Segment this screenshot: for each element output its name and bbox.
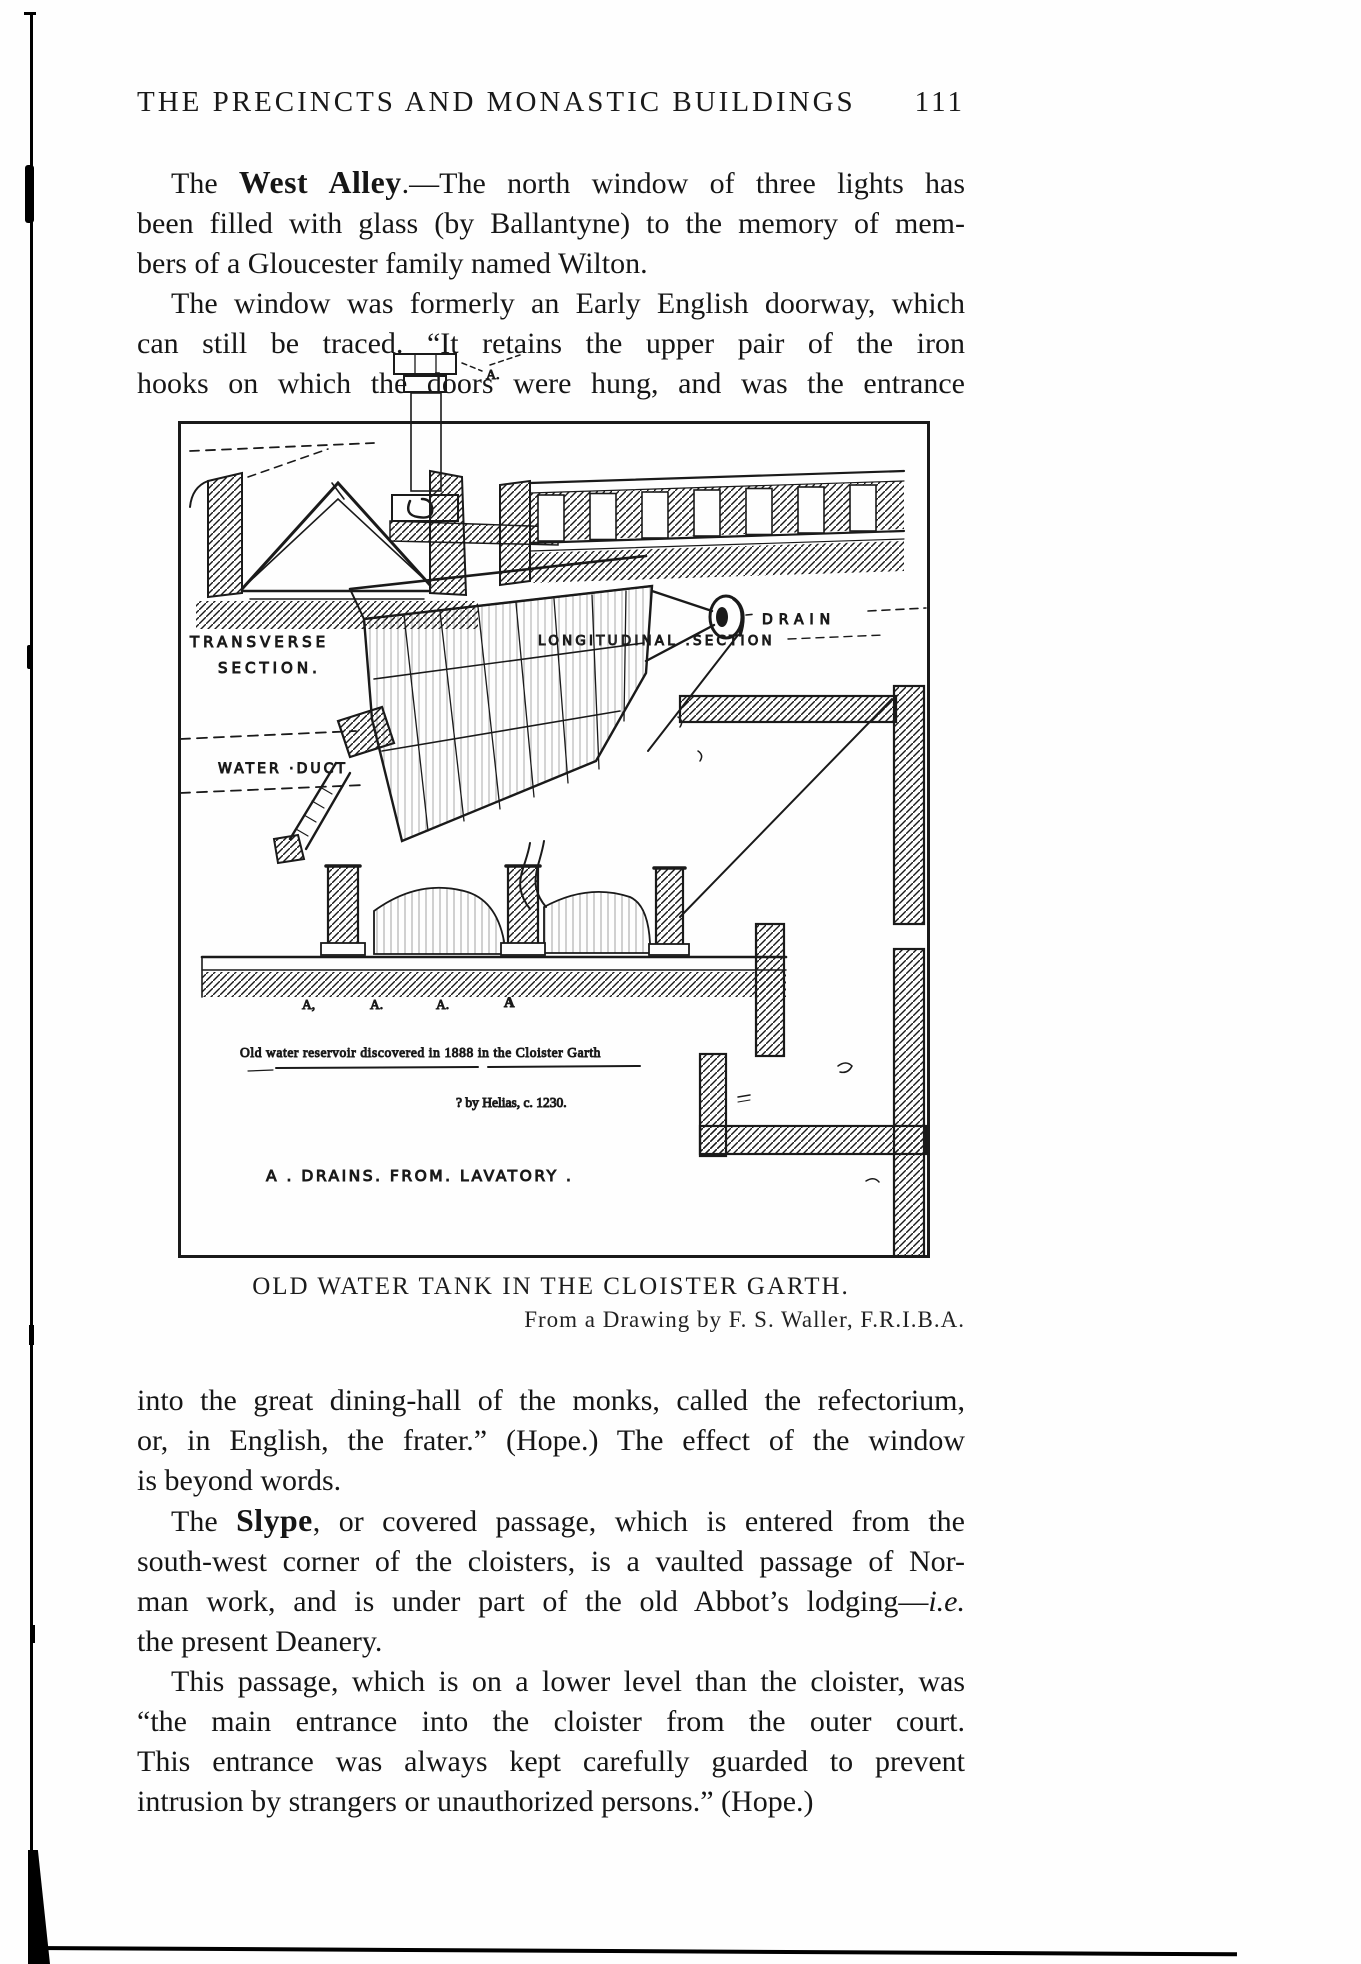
text-line: the present Deanery. xyxy=(137,1622,965,1662)
text-line: into the great dining-hall of the monks,… xyxy=(137,1381,965,1421)
text-line: south-west corner of the cloisters, is a… xyxy=(137,1542,965,1582)
text-segment: bers of a Gloucester family named Wilton… xyxy=(137,247,648,280)
label-drain: DRAIN xyxy=(762,612,836,628)
label-transverse: TRANSVERSE xyxy=(189,633,329,651)
figure-old-water-tank: TRANSVERSE SECTION. A. xyxy=(178,421,930,1258)
text-segment: the present Deanery. xyxy=(137,1625,382,1658)
scan-spine-line xyxy=(30,14,33,1864)
text-segment: .—The north window of three lights has xyxy=(402,167,965,200)
text-segment: man work, and is under part of the old A… xyxy=(137,1585,928,1618)
scan-page-edge xyxy=(32,1946,1237,1956)
text-line: The Slype, or covered passage, which is … xyxy=(137,1501,965,1542)
text-line: intrusion by strangers or unauthorized p… xyxy=(137,1782,965,1822)
text-segment: The window was formerly an Early English… xyxy=(171,287,965,320)
text-segment: “the main entrance into the cloister fro… xyxy=(137,1705,965,1738)
paragraph: This passage, which is on a lower level … xyxy=(137,1662,965,1822)
text-segment: This entrance was always kept carefully … xyxy=(137,1745,965,1778)
label-transverse-2: SECTION. xyxy=(218,659,321,677)
text-line: man work, and is under part of the old A… xyxy=(137,1582,965,1622)
text-segment: intrusion by strangers or unauthorized p… xyxy=(137,1785,814,1818)
scan-mark xyxy=(29,1325,34,1345)
inscription-drains-lavatory: A . DRAINS. FROM. LAVATORY . xyxy=(266,1167,573,1185)
scan-mark xyxy=(25,165,34,223)
scan-mark xyxy=(24,12,36,15)
scan-mark xyxy=(30,1625,35,1643)
text-segment: into the great dining-hall of the monks,… xyxy=(137,1384,965,1417)
text-line: or, in English, the frater.” (Hope.) The… xyxy=(137,1421,965,1461)
text-segment: south-west corner of the cloisters, is a… xyxy=(137,1545,965,1578)
marker-a-2: A. xyxy=(370,997,383,1012)
text-line: The West Alley.—The north window of thre… xyxy=(137,163,965,204)
marker-a-4: A xyxy=(504,995,515,1011)
text-line: This entrance was always kept carefully … xyxy=(137,1742,965,1782)
paragraph: The West Alley.—The north window of thre… xyxy=(137,163,965,284)
figure-caption-block: OLD WATER TANK IN THE CLOISTER GARTH. Fr… xyxy=(137,1272,965,1335)
book-page: THE PRECINCTS AND MONASTIC BUILDINGS 111… xyxy=(0,0,1361,1964)
bold-term: Slype xyxy=(236,1503,313,1538)
paragraph: into the great dining-hall of the monks,… xyxy=(137,1381,965,1501)
inscription-reservoir: Old water reservoir discovered in 1888 i… xyxy=(240,1045,601,1060)
scan-mark xyxy=(27,645,32,669)
text-segment: been filled with glass (by Ballantyne) t… xyxy=(137,207,965,240)
text-line: “the main entrance into the cloister fro… xyxy=(137,1702,965,1742)
text-line: This passage, which is on a lower level … xyxy=(137,1662,965,1702)
figure-caption: OLD WATER TANK IN THE CLOISTER GARTH. xyxy=(137,1272,965,1302)
bold-term: West Alley xyxy=(239,165,402,200)
text-line: been filled with glass (by Ballantyne) t… xyxy=(137,204,965,244)
paragraph: The Slype, or covered passage, which is … xyxy=(137,1501,965,1662)
text-segment: The xyxy=(171,167,239,200)
text-line: bers of a Gloucester family named Wilton… xyxy=(137,244,965,284)
page-number: 111 xyxy=(915,86,965,119)
italic-term: i.e. xyxy=(928,1585,965,1618)
text-line: The window was formerly an Early English… xyxy=(137,284,965,324)
text-segment: or, in English, the frater.” (Hope.) The… xyxy=(137,1424,965,1457)
figure-credit: From a Drawing by F. S. Waller, F.R.I.B.… xyxy=(137,1305,965,1335)
page-content: THE PRECINCTS AND MONASTIC BUILDINGS 111… xyxy=(137,0,965,1822)
text-segment: The xyxy=(171,1505,236,1538)
marker-a-3: A. xyxy=(436,997,449,1012)
label-marker-a-top: A. xyxy=(486,368,500,383)
marker-a-1: A, xyxy=(302,997,315,1012)
text-line: is beyond words. xyxy=(137,1461,965,1501)
text-segment: is beyond words. xyxy=(137,1464,341,1497)
water-tank-drawing: TRANSVERSE SECTION. A. xyxy=(178,346,930,1258)
running-title: THE PRECINCTS AND MONASTIC BUILDINGS xyxy=(137,86,856,119)
page-header: THE PRECINCTS AND MONASTIC BUILDINGS 111 xyxy=(137,86,965,119)
text-block-bottom: into the great dining-hall of the monks,… xyxy=(137,1381,965,1822)
text-segment: , or covered passage, which is entered f… xyxy=(313,1505,965,1538)
text-segment: This passage, which is on a lower level … xyxy=(171,1665,965,1698)
inscription-helias: ? by Helias, c. 1230. xyxy=(456,1095,567,1110)
